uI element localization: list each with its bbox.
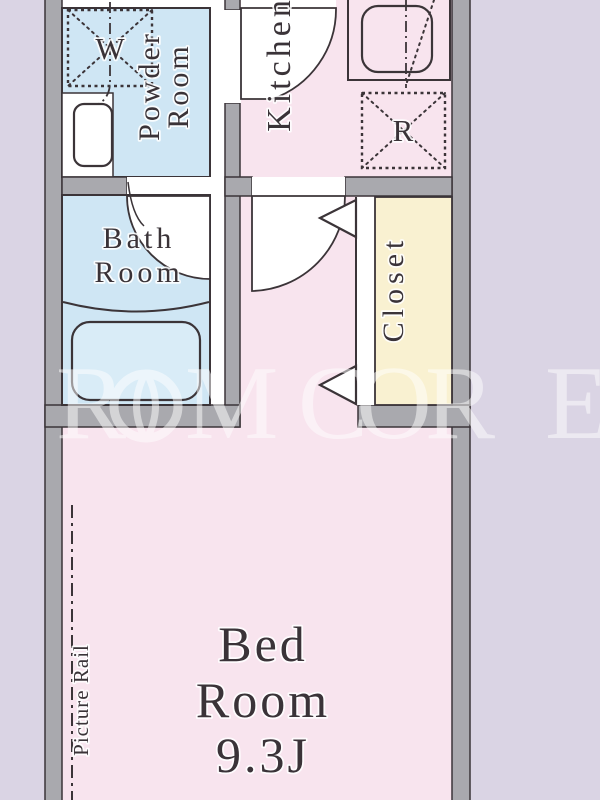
watermark-letter: R	[425, 344, 495, 461]
watermark-letter: O	[356, 344, 432, 461]
powder-room: W Powder Room	[62, 2, 210, 177]
kitchen-door-opening	[224, 10, 241, 103]
bath-door-opening	[127, 177, 222, 196]
wall-segment	[225, 177, 252, 196]
kitchen-label: Kitchen	[261, 0, 298, 132]
toilet-icon	[74, 104, 112, 166]
refrigerator-label: R	[393, 113, 414, 148]
bath-room-label-line1: Bath	[103, 222, 176, 255]
floorplan: W Powder Room R Bath Room	[0, 0, 600, 800]
powder-room-label-line2: Room	[162, 43, 195, 128]
bed-room-label-line2: Room	[196, 672, 330, 728]
watermark-letter: M	[185, 344, 278, 461]
watermark-letter: E	[545, 344, 600, 461]
closet-label: Closet	[377, 236, 410, 343]
bed-room-size-label: 9.3J	[216, 727, 310, 783]
wall-segment	[62, 177, 127, 196]
floorplan-canvas: W Powder Room R Bath Room	[0, 0, 600, 800]
picture-rail-label: Picture Rail	[69, 644, 93, 756]
bath-room-label-line2: Room	[94, 256, 183, 289]
bed-room-label-line1: Bed	[218, 616, 308, 672]
wall-segment	[345, 177, 452, 196]
hall-door-opening	[252, 177, 345, 196]
divider-wall-top	[225, 0, 240, 10]
washing-machine-label: W	[95, 31, 125, 66]
